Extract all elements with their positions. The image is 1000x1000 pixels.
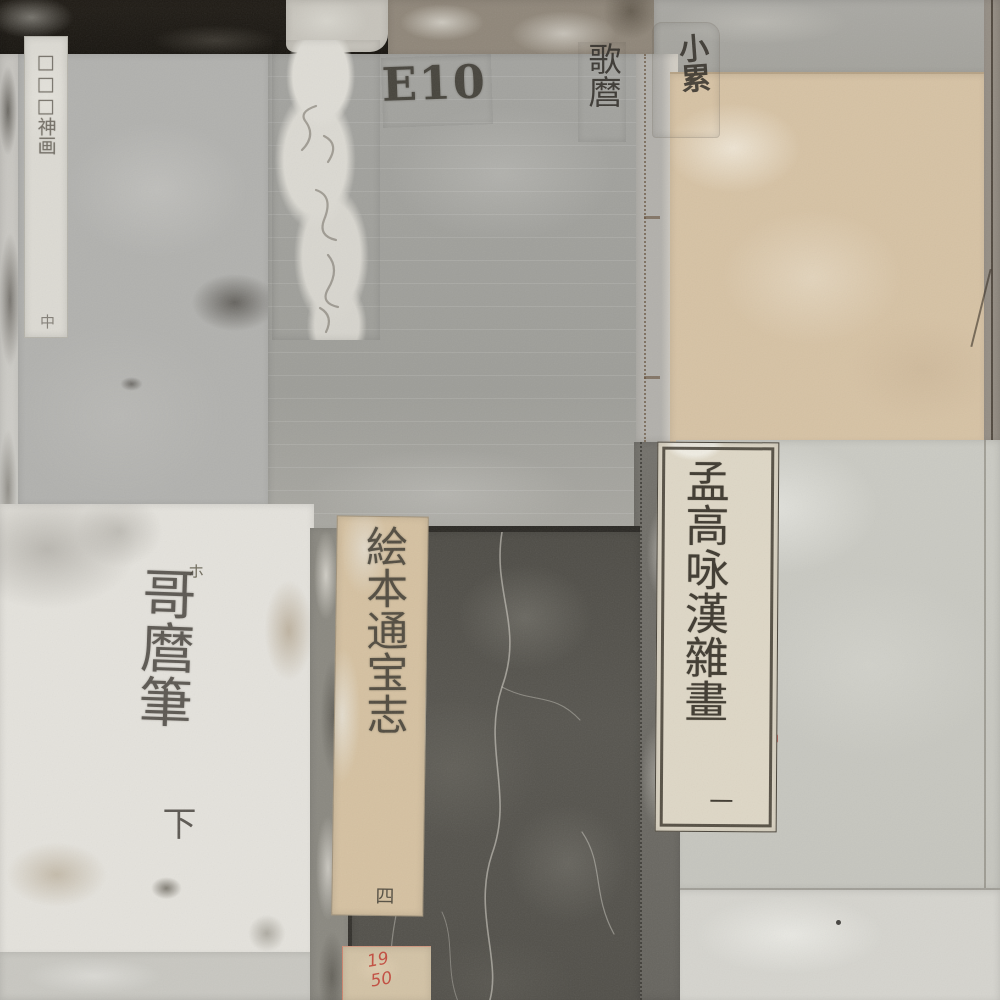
small-corner-label-text: 小累 <box>667 32 715 95</box>
white-cover: ホ 哥麿筆 下 <box>0 504 314 956</box>
binding-thread <box>644 54 646 442</box>
red-tag-numbers: 19 50 <box>366 949 394 991</box>
printed-title-slip: 孟高咏漢雜畫 一 <box>655 442 780 833</box>
utamaro-hitsu-calligraphy: 哥麿筆 <box>125 565 200 729</box>
red-number-tag: 19 50 <box>342 946 431 1000</box>
binding-thread <box>640 442 642 1000</box>
printed-slip-title: 孟高咏漢雜畫 <box>676 459 728 723</box>
dark-slip-volume: 四 <box>370 886 397 905</box>
utamaro-ink-label: 歌麿 <box>578 42 626 142</box>
bottom-left-edge-strip <box>0 952 314 1000</box>
dark-slip-title: 絵本通宝志 <box>356 525 411 735</box>
left-title-slip: □□□神画 中 <box>24 36 68 338</box>
left-title-slip-text: □□□神画 <box>32 51 58 155</box>
right-stitched-edge <box>984 0 1000 442</box>
printed-slip-volume: 一 <box>702 789 737 813</box>
binding-cord <box>991 0 993 442</box>
red-tag-line2: 50 <box>369 969 394 992</box>
stitch-mark <box>644 376 660 379</box>
left-title-slip-volume: 中 <box>37 314 58 329</box>
bottom-right-pale-cover <box>676 888 1000 1000</box>
volume-mark-ge: 下 <box>152 806 201 840</box>
cover-seam <box>984 440 986 890</box>
ink-speck <box>836 920 841 925</box>
book-cover-collage: □□□神画 中 E10 歌麿 小累 <box>0 0 1000 1000</box>
dark-cover-title-slip: 絵本通宝志 四 <box>331 515 429 916</box>
shelf-mark-text: E10 <box>381 54 493 128</box>
faint-cursive-strokes <box>272 40 380 340</box>
small-corner-label: 小累 <box>652 22 720 138</box>
stitch-mark <box>644 216 660 219</box>
torn-white-patch <box>272 40 380 340</box>
